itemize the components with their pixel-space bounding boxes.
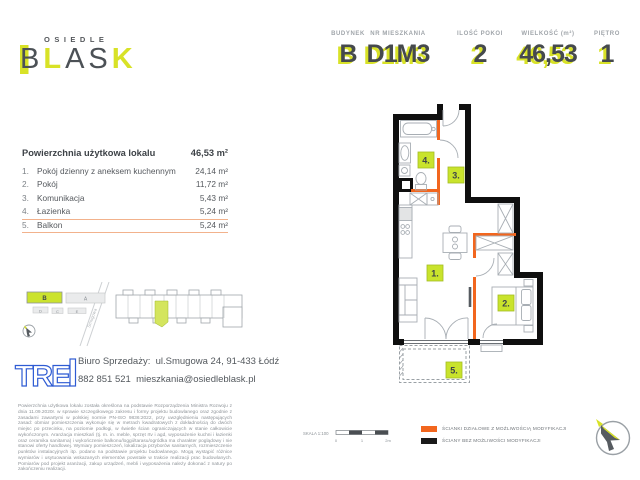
scale-label: SKALA 1:100 (303, 431, 329, 436)
room-area: 11,72 m² (196, 179, 228, 189)
row-number: 2. (22, 179, 37, 189)
room-name: Pokój dzienny z aneksem kuchennym (37, 166, 195, 176)
building-footprint (116, 290, 242, 327)
highlighted-unit (155, 301, 168, 327)
wardrobes (476, 204, 513, 275)
shaft-inner (402, 181, 410, 189)
orange-wall-swatch (421, 426, 437, 432)
room-badge-4: 4. (422, 156, 430, 166)
washbasin (399, 143, 411, 163)
legal-disclaimer: Powierzchnia użytkowa lokalu została okr… (18, 404, 232, 473)
legend-text: ŚCIANY BEZ MOŻLIWOŚCI MODYFIKACJI (442, 438, 541, 443)
brand-name-text: BLASK (20, 45, 137, 74)
scale-tick-1: 1 (361, 438, 364, 443)
block-c-label: C (56, 309, 59, 314)
tre-developer-logo: TRE (14, 350, 80, 398)
row-number: 3. (22, 193, 37, 203)
header-cell-floor: PIĘTRO 1 (574, 31, 640, 67)
kitchen-counter (399, 205, 412, 258)
scale-bar: SKALA 1:100 0 1 2m (303, 426, 395, 446)
site-map: Smugowa B A D C E (16, 282, 248, 348)
room-area: 5,24 m² (200, 220, 228, 230)
room-area: 24,14 m² (195, 166, 228, 176)
sofa (399, 278, 417, 322)
windows (404, 341, 503, 344)
area-table-title: Powierzchnia użytkowa lokalu (22, 148, 155, 158)
brand-letter: B (20, 45, 43, 74)
brand-letter: A (65, 45, 88, 74)
sales-office-phone-email: 882 851 521 mieszkania@osiedleblask.pl (78, 374, 279, 385)
table-row: 5. Balkon 5,24 m² (22, 220, 228, 233)
table-row: 4. Łazienka 5,24 m² (22, 206, 228, 219)
apartment-card-page: OSIEDLE BLASK BUDYNEK B NR MIESZKANIA D1… (0, 0, 640, 480)
brand-logo: OSIEDLE BLASK (20, 28, 140, 86)
walls-legend: ŚCIANKI DZIAŁOWE Z MOŻLIWOŚCIĄ MODYFIKAC… (421, 426, 567, 450)
black-wall-swatch (421, 438, 437, 444)
row-number: 1. (22, 166, 37, 176)
block-d-label: D (39, 308, 42, 313)
dining-table (443, 226, 467, 260)
room-area: 5,24 m² (200, 206, 228, 216)
usable-area-table: Powierzchnia użytkowa lokalu 46,53 m² 1.… (22, 148, 228, 233)
room-badge-3: 3. (452, 171, 460, 181)
sales-office-address: Biuro Sprzedaży: ul.Smugowa 24, 91-433 Ł… (78, 356, 279, 367)
balcony-sill (481, 345, 502, 352)
table-row: 3. Komunikacja 5,43 m² (22, 193, 228, 206)
area-table-total: 46,53 m² (191, 148, 228, 158)
room-name: Balkon (37, 220, 200, 230)
compass-icon (592, 417, 636, 461)
room-name: Łazienka (37, 206, 200, 216)
room-name: Pokój (37, 179, 196, 189)
brand-letter: S (88, 45, 111, 74)
kitchen-cabinet (410, 193, 438, 205)
walls-fixed (393, 104, 543, 345)
row-number: 5. (22, 220, 37, 230)
table-row: 1. Pokój dzienny z aneksem kuchennym 24,… (22, 166, 228, 179)
block-e-label: E (76, 309, 79, 314)
scale-tick-0: 0 (335, 438, 338, 443)
header-value: 1 (574, 42, 640, 67)
sales-office-contact: Biuro Sprzedaży: ul.Smugowa 24, 91-433 Ł… (78, 356, 279, 392)
header-cell-apartment-number: NR MIESZKANIA D1M3 (360, 31, 436, 67)
room-name: Komunikacja (37, 193, 200, 203)
area-table-header: Powierzchnia użytkowa lokalu 46,53 m² (22, 148, 228, 158)
bathtub (401, 121, 437, 138)
room-badge-2: 2. (502, 299, 510, 309)
legend-item-modifiable: ŚCIANKI DZIAŁOWE Z MOŻLIWOŚCIĄ MODYFIKAC… (421, 426, 567, 432)
table-row: 2. Pokój 11,72 m² (22, 179, 228, 192)
room-area: 5,43 m² (200, 193, 228, 203)
room-badge-1: 1. (431, 269, 439, 279)
row-number: 4. (22, 206, 37, 216)
block-b-label: B (42, 296, 47, 302)
header-value: D1M3 (360, 42, 436, 67)
header-label: PIĘTRO (574, 31, 640, 37)
header-label: NR MIESZKANIA (360, 31, 436, 37)
brand-letter: K (112, 45, 137, 74)
door-swings (425, 110, 497, 339)
tv-panel (469, 287, 472, 307)
toilet (416, 173, 427, 191)
floor-plan: 4. 3. 1. 2. 5. (388, 92, 563, 397)
tre-logo-text: TRE (15, 360, 70, 393)
scale-tick-2m: 2m (385, 438, 391, 443)
mini-compass-icon (23, 325, 35, 337)
legend-text: ŚCIANKI DZIAŁOWE Z MOŻLIWOŚCIĄ MODYFIKAC… (442, 426, 567, 431)
small-sink (399, 165, 410, 176)
room-badge-5: 5. (450, 366, 458, 376)
brand-letter: L (43, 45, 65, 74)
legend-item-fixed: ŚCIANY BEZ MOŻLIWOŚCI MODYFIKACJI (421, 438, 567, 444)
